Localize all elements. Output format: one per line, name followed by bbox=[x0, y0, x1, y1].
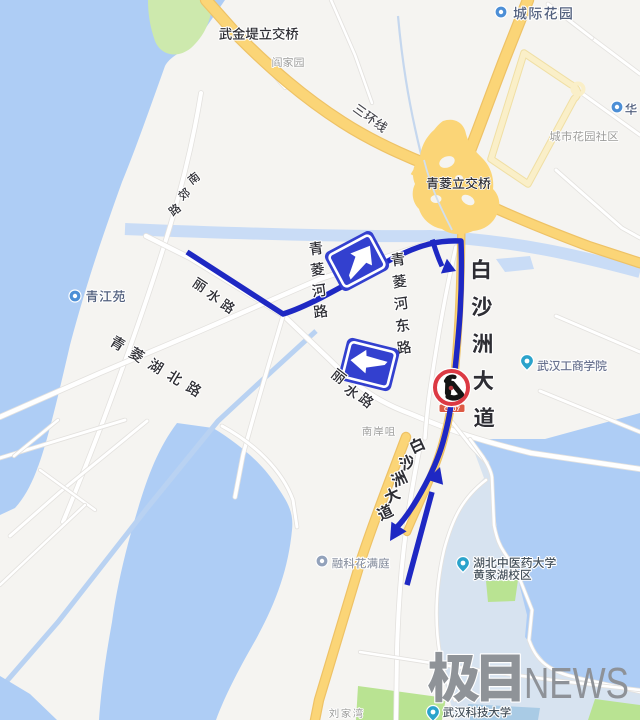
svg-text:NEWS: NEWS bbox=[524, 659, 629, 708]
